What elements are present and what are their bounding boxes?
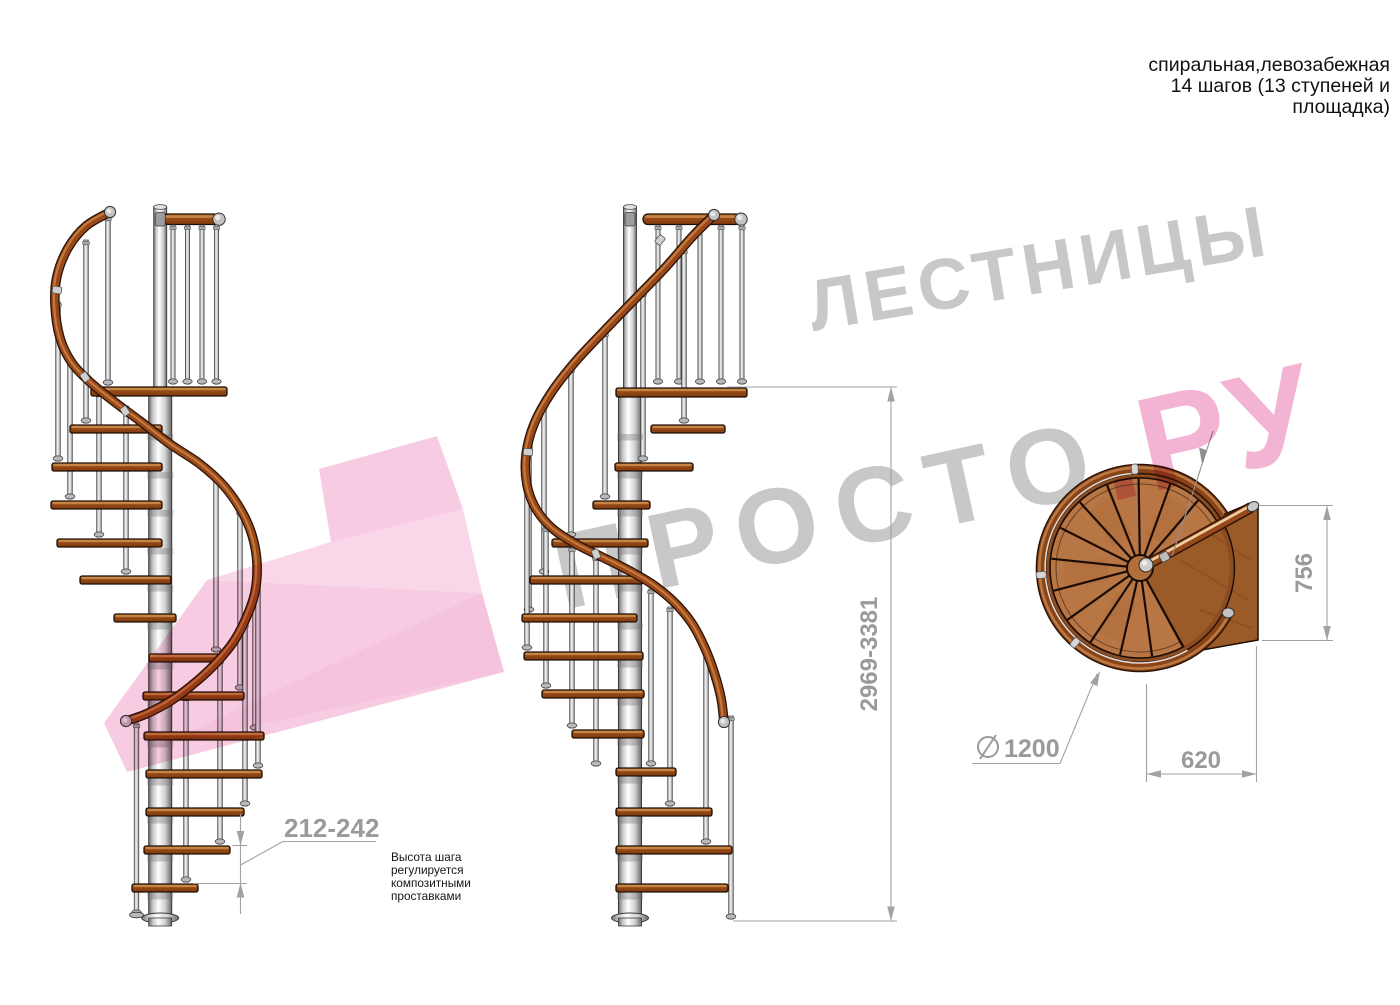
svg-text:1200: 1200 [1004, 735, 1060, 763]
svg-text:Высота шагарегулируетсякомпози: Высота шагарегулируетсякомпозитнымипрост… [391, 850, 471, 903]
svg-text:212-242: 212-242 [284, 813, 379, 843]
svg-text:620: 620 [1181, 747, 1221, 774]
svg-text:2969-3381: 2969-3381 [856, 597, 883, 712]
svg-text:756: 756 [1291, 553, 1318, 593]
